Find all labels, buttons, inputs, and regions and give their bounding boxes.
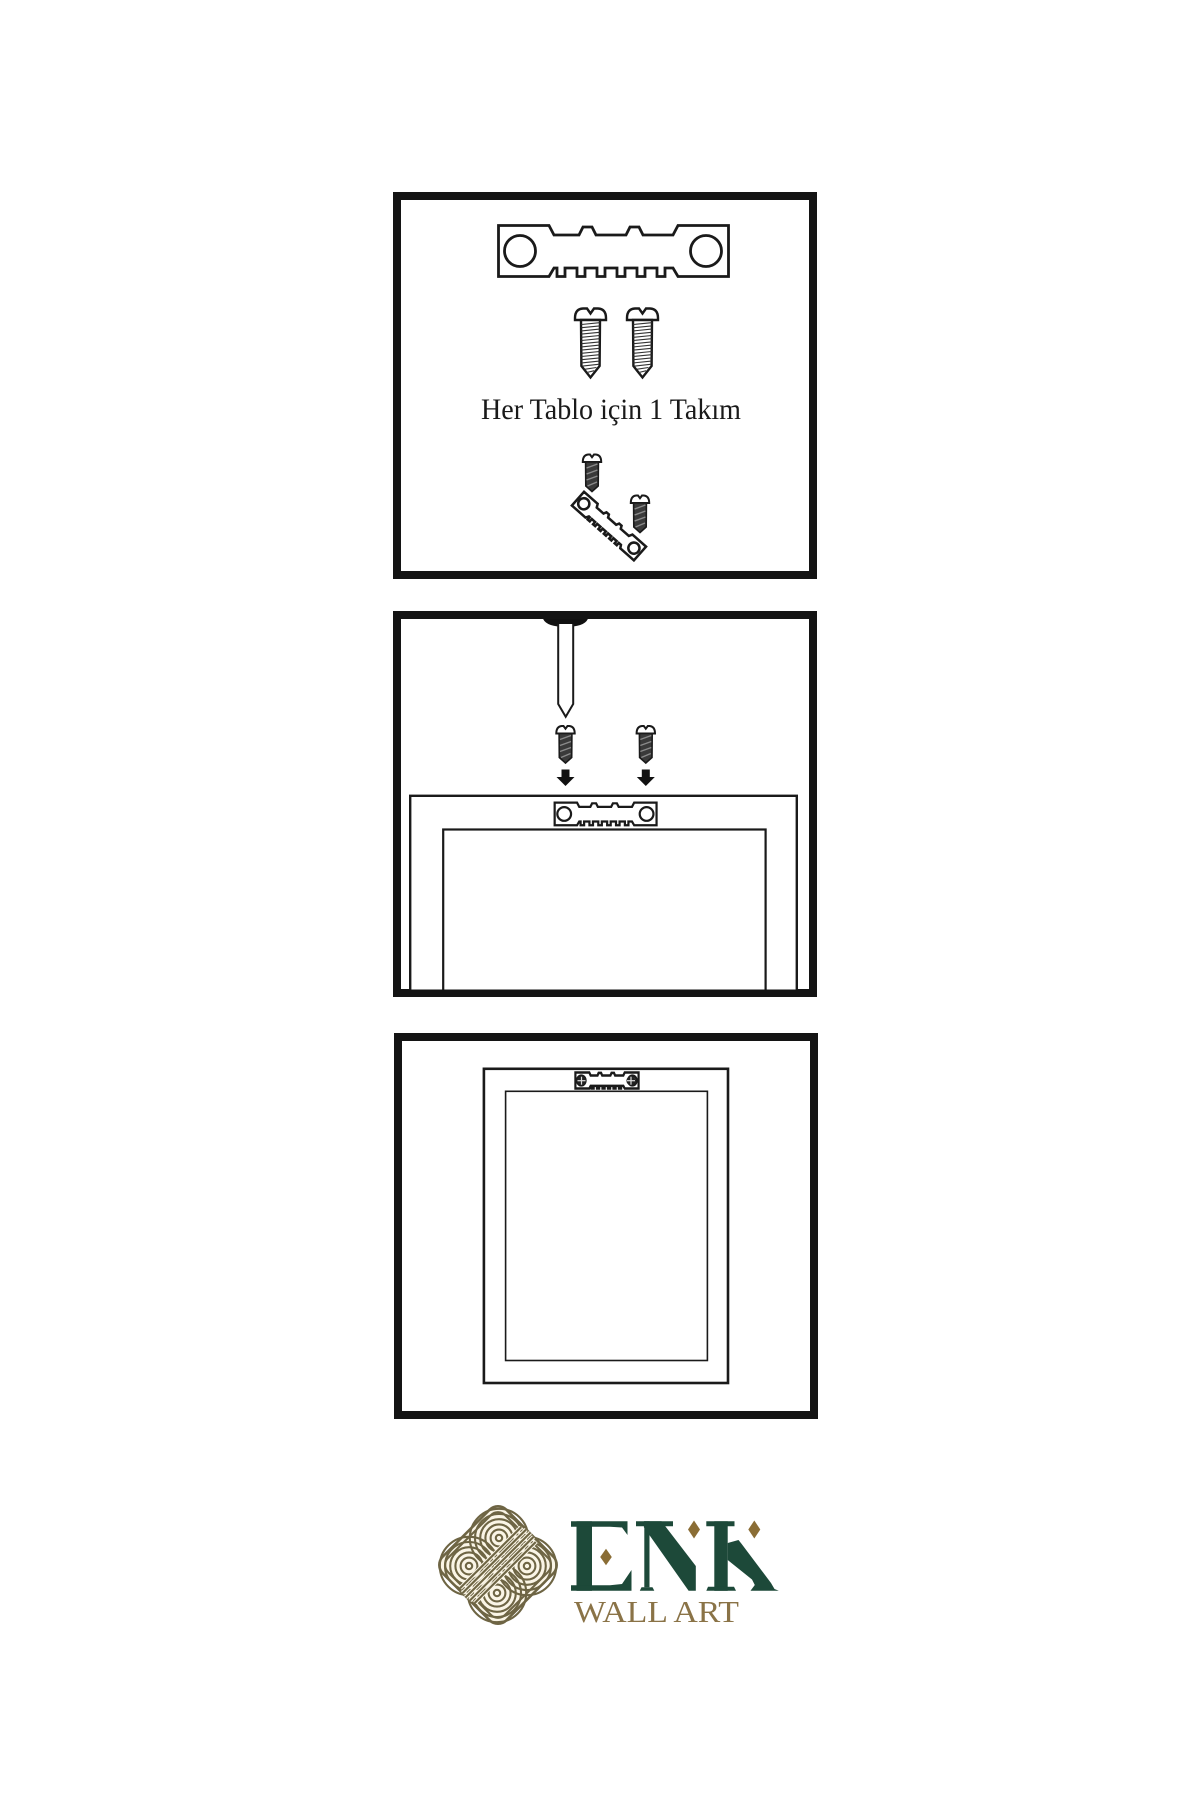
svg-text:Her Tablo için 1 Takım: Her Tablo için 1 Takım [481,393,741,426]
svg-text:WALL ART: WALL ART [574,1594,739,1629]
